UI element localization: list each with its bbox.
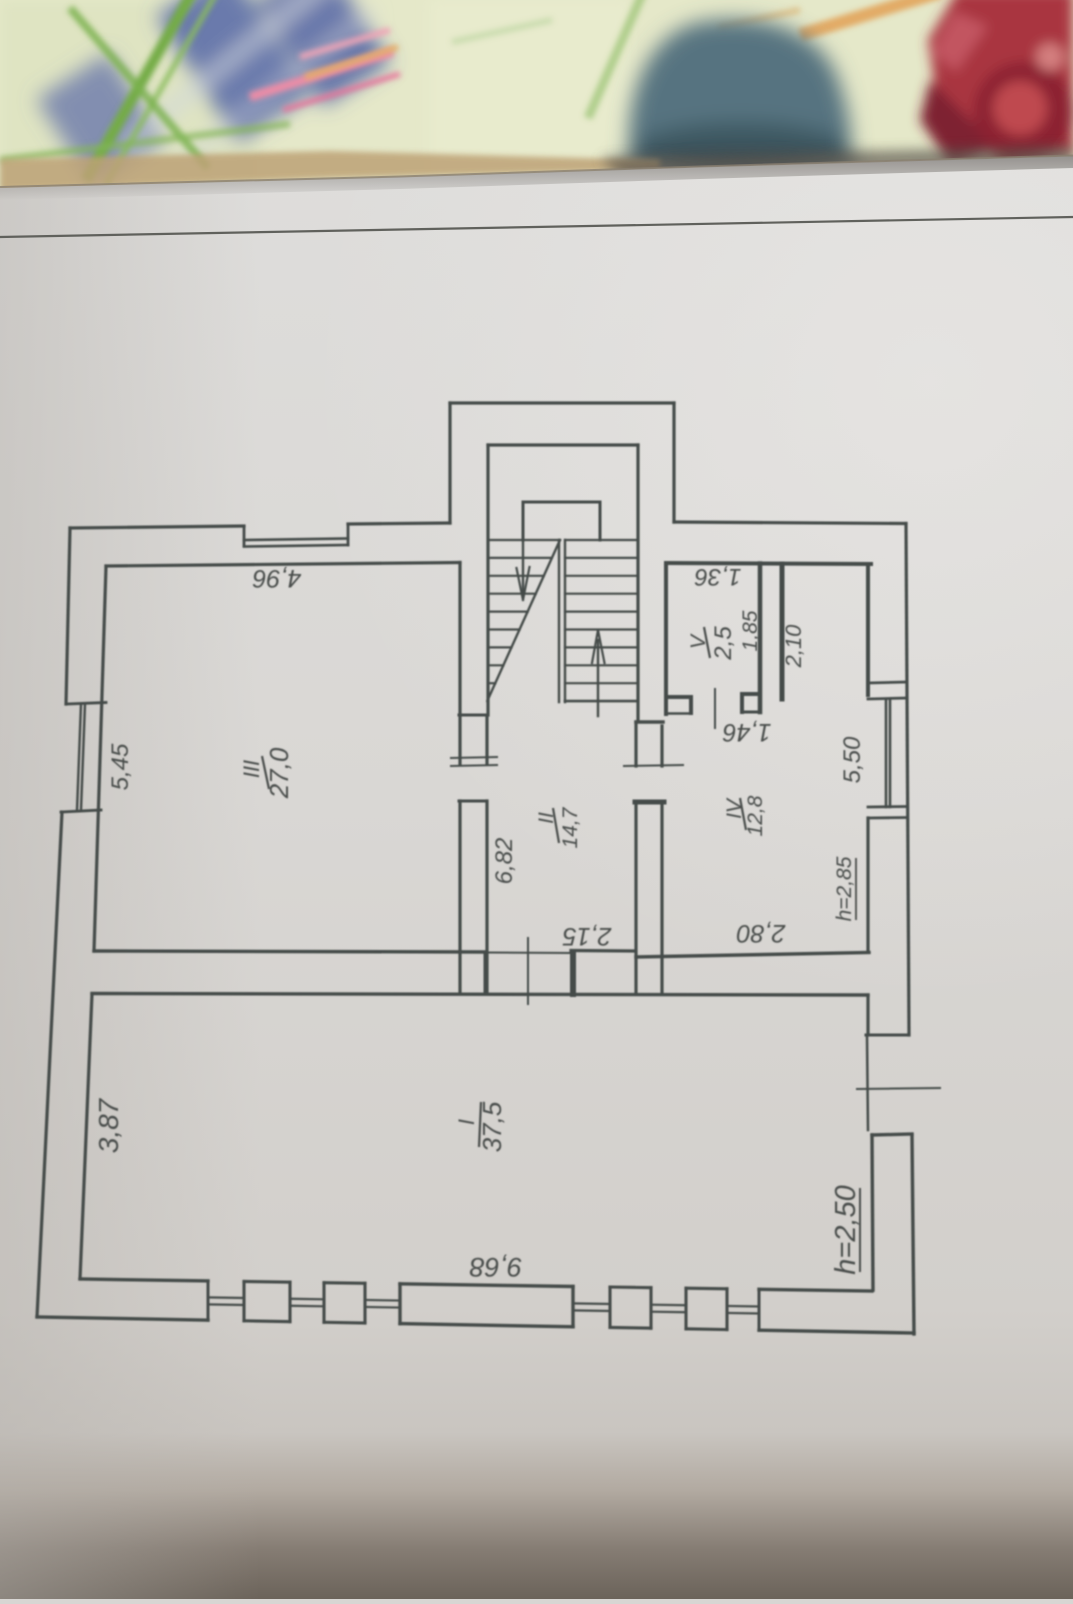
svg-text:I: I xyxy=(454,1119,479,1125)
svg-text:9,68: 9,68 xyxy=(470,1252,523,1282)
svg-text:5,45: 5,45 xyxy=(107,743,134,790)
svg-text:2,10: 2,10 xyxy=(781,624,806,669)
svg-text:5,50: 5,50 xyxy=(839,736,866,783)
svg-text:2,5: 2,5 xyxy=(710,626,737,661)
svg-text:h=2,85: h=2,85 xyxy=(833,856,856,921)
svg-text:4,96: 4,96 xyxy=(253,564,302,592)
svg-text:1,85: 1,85 xyxy=(739,610,762,651)
svg-text:1,46: 1,46 xyxy=(723,718,772,746)
svg-text:1,36: 1,36 xyxy=(694,563,741,590)
svg-text:3,87: 3,87 xyxy=(93,1097,124,1153)
svg-text:14,7: 14,7 xyxy=(559,806,582,848)
svg-text:27,0: 27,0 xyxy=(264,747,294,799)
svg-text:III: III xyxy=(239,760,264,778)
svg-text:12,8: 12,8 xyxy=(744,795,767,836)
svg-text:2,80: 2,80 xyxy=(737,919,787,947)
svg-text:37,5: 37,5 xyxy=(477,1101,507,1152)
svg-text:2,15: 2,15 xyxy=(563,922,613,950)
svg-text:h=2,50: h=2,50 xyxy=(830,1185,862,1275)
svg-text:6,82: 6,82 xyxy=(491,838,518,885)
